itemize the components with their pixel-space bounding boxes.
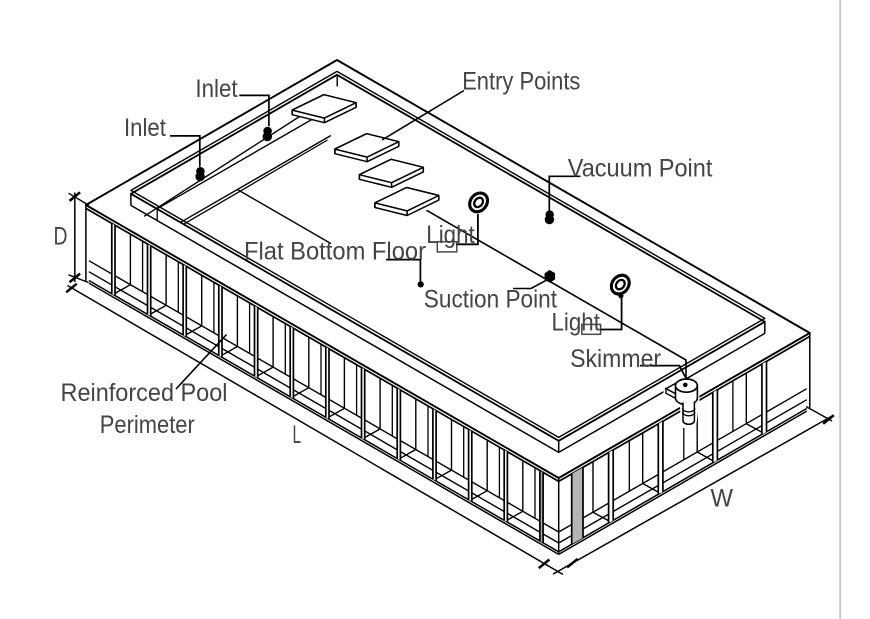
svg-text:W: W [711,484,734,512]
svg-text:Inlet: Inlet [124,114,166,142]
svg-text:Reinforced Pool: Reinforced Pool [61,379,228,407]
svg-text:Flat Bottom Floor: Flat Bottom Floor [244,238,426,266]
svg-text:Vacuum Point: Vacuum Point [568,154,713,182]
svg-text:D: D [54,223,68,251]
svg-text:L: L [293,421,302,449]
svg-text:Light: Light [552,309,600,337]
svg-text:Perimeter: Perimeter [100,411,195,439]
svg-text:Inlet: Inlet [195,75,237,103]
svg-text:Suction Point: Suction Point [424,286,557,314]
svg-text:Skimmer: Skimmer [570,345,661,373]
svg-text:Light: Light [426,221,474,249]
svg-text:Entry Points: Entry Points [462,67,580,95]
